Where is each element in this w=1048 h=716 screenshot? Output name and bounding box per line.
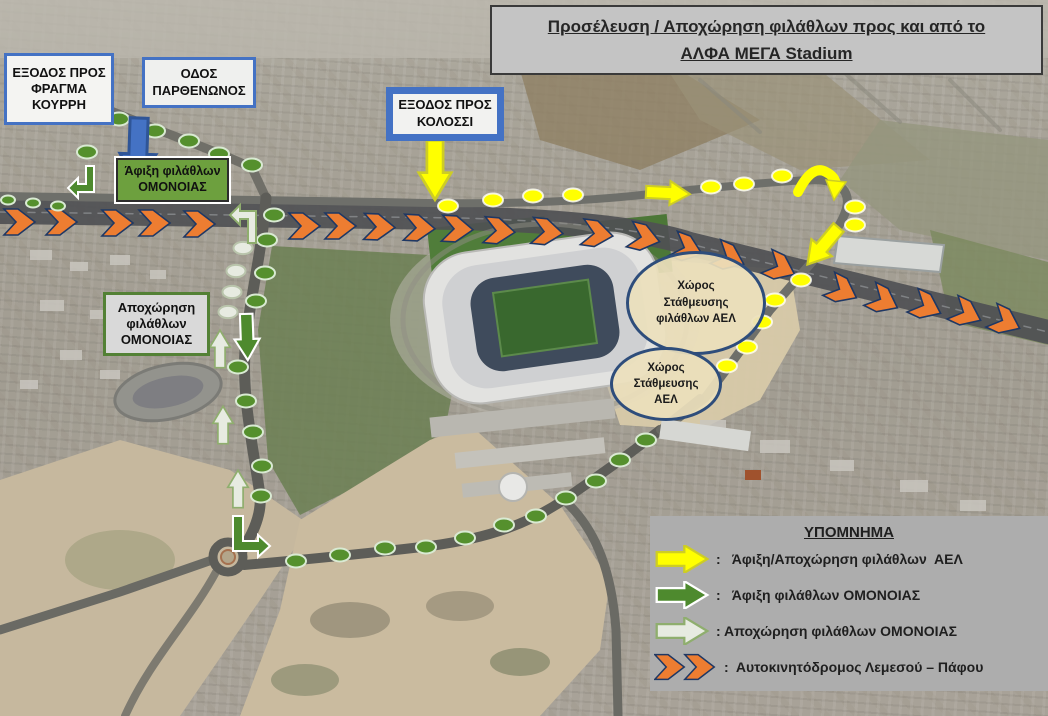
legend-item-omonoias-departure: : Αποχώρηση φιλάθλων ΟΜΟΝΟΙΑΣ [650, 613, 1048, 649]
green-route-dot [330, 549, 350, 562]
highway-chevron [580, 219, 614, 249]
omonoias-departure-label: Αποχώρηση φιλάθλων ΟΜΟΝΟΙΑΣ [103, 292, 210, 356]
map-title: Προσέλευση / Αποχώρηση φιλάθλων προς και… [490, 5, 1043, 75]
green-route-dot [77, 146, 97, 159]
green-route-dot [242, 159, 262, 172]
green-roundabout-arrow [233, 516, 270, 557]
green-hook-arrow [68, 166, 94, 198]
legend-item-label: : Άφιξη φιλάθλων ΟΜΟΝΟΙΑΣ [716, 587, 920, 603]
green-route-dot [636, 434, 656, 447]
pale-hook-arrow [230, 205, 256, 243]
highway-chevron [441, 215, 473, 243]
highway-chevron [289, 213, 320, 239]
green-route-dot [264, 209, 284, 222]
green-route-dot [251, 490, 271, 503]
yellow-route-dot [765, 294, 785, 307]
highway-chevron [864, 282, 903, 319]
highway-chevron [403, 214, 435, 242]
green-south-arrow [234, 313, 261, 360]
yellow-route-dot [563, 189, 583, 202]
green-route-dot [252, 460, 272, 473]
exit-kolossi-label: ΕΞΟΔΟΣ ΠΡΟΣ ΚΟΛΟΣΣΙ [386, 87, 504, 141]
yellow-route-dot [772, 170, 792, 183]
yellow-route-dot [734, 178, 754, 191]
highway-chevron [46, 209, 77, 235]
yellow-curve-arrowhead [826, 180, 846, 200]
legend-item-omonoias-arrival: : Άφιξη φιλάθλων ΟΜΟΝΟΙΑΣ [650, 577, 1048, 613]
highway-chevron [986, 303, 1025, 340]
parthenonos-street-label: ΟΔΟΣ ΠΑΡΘΕΝΩΝΟΣ [142, 57, 256, 108]
green-arrow-icon [654, 581, 716, 609]
legend: ΥΠΟΜΝΗΜΑ : Άφιξη/Αποχώρηση φιλάθλων ΑΕΛ … [650, 516, 1048, 691]
highway-chevron [184, 211, 215, 237]
traffic-plan-infographic: ΕΞΟΔΟΣ ΠΡΟΣ ΦΡΑΓΜΑ ΚΟΥΡΡΗ ΟΔΟΣ ΠΑΡΘΕΝΩΝΟ… [0, 0, 1048, 716]
green-route-dot [556, 492, 576, 505]
green-route-dot [236, 395, 256, 408]
green-route-dot [228, 361, 248, 374]
green-route-dot [246, 295, 266, 308]
green-route-dot [455, 532, 475, 545]
pale-up-arrow-2 [213, 406, 233, 443]
legend-item-label: : Άφιξη/Αποχώρηση φιλάθλων ΑΕΛ [716, 551, 963, 567]
yellow-arrow-icon [654, 545, 716, 573]
yellow-route-dot [845, 219, 865, 232]
yellow-route-dot [483, 194, 503, 207]
green-route-dot-small [1, 195, 15, 204]
ael-parking-area: Χώρος Στάθμευσης ΑΕΛ [610, 347, 722, 421]
yellow-route-dot [701, 181, 721, 194]
title-line-1: Προσέλευση / Αποχώρηση φιλάθλων προς και… [548, 17, 985, 37]
yellow-route-dot [717, 360, 737, 373]
highway-chevron [4, 209, 35, 235]
pale-up-arrow-1 [210, 330, 230, 367]
omonoias-arrival-label: Άφιξη φιλάθλων ΟΜΟΝΟΙΑΣ [116, 158, 229, 202]
highway-chevron [907, 288, 946, 325]
legend-title: ΥΠΟΜΝΗΜΑ [650, 524, 1048, 541]
pale-route-dot [219, 306, 238, 318]
green-route-dot [257, 234, 277, 247]
legend-item-label: : Αυτοκινητόδρομος Λεμεσού – Πάφου [724, 659, 983, 675]
ael-fans-parking-area: Χώρος Στάθμευσης φιλάθλων ΑΕΛ [626, 251, 766, 355]
pale-route-dot [227, 265, 246, 277]
yellow-exit-kolossi-arrow [419, 140, 451, 199]
highway-chevron [102, 210, 133, 236]
highway-chevron [947, 295, 986, 332]
yellow-to-parking-arrow [797, 219, 848, 273]
highway-chevron [483, 217, 516, 246]
pale-up-arrow-3 [228, 470, 248, 507]
green-route-dot-small [26, 198, 40, 207]
highway-chevron [364, 213, 396, 240]
exit-kourri-label: ΕΞΟΔΟΣ ΠΡΟΣ ΦΡΑΓΜΑ ΚΟΥΡΡΗ [4, 53, 114, 125]
highway-chevron [325, 213, 356, 239]
yellow-route-dot [791, 274, 811, 287]
highway-chevron [823, 272, 862, 309]
pale-route-dot [223, 286, 242, 298]
highway-chevron [139, 210, 170, 236]
green-route-dot [416, 541, 436, 554]
pale-arrow-icon [654, 617, 716, 645]
yellow-route-dot [523, 190, 543, 203]
green-route-dot [243, 426, 263, 439]
green-route-dot [375, 542, 395, 555]
green-route-dot [494, 519, 514, 532]
highway-chevron [626, 222, 662, 255]
green-route-dot [586, 475, 606, 488]
yellow-route-dot [845, 201, 865, 214]
green-route-dot [179, 135, 199, 148]
yellow-east-arrow [645, 180, 690, 206]
orange-chevrons-icon [654, 653, 724, 681]
yellow-route-dot [438, 200, 458, 213]
legend-item-ael: : Άφιξη/Αποχώρηση φιλάθλων ΑΕΛ [650, 541, 1048, 577]
legend-item-label: : Αποχώρηση φιλάθλων ΟΜΟΝΟΙΑΣ [716, 623, 957, 639]
green-route-dot [610, 454, 630, 467]
highway-chevron [531, 217, 565, 246]
title-line-2: ΑΛΦΑ ΜΕΓΑ Stadium [680, 44, 852, 64]
green-route-dot [286, 555, 306, 568]
green-route-dot [255, 267, 275, 280]
green-route-dot [526, 510, 546, 523]
green-route-dot-small [51, 201, 65, 210]
legend-item-highway: : Αυτοκινητόδρομος Λεμεσού – Πάφου [650, 649, 1048, 685]
